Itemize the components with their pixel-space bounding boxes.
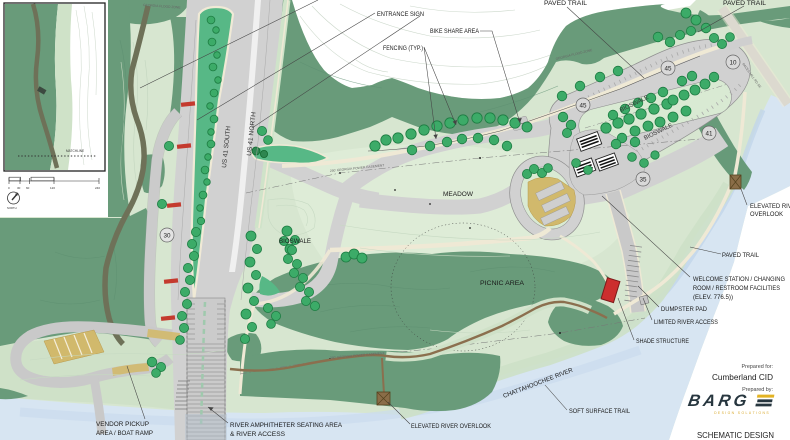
svg-text:Cumberland CID: Cumberland CID	[712, 373, 773, 382]
svg-text:NORTH: NORTH	[7, 206, 17, 210]
svg-text:45: 45	[579, 102, 587, 109]
svg-text:PICNIC AREA: PICNIC AREA	[480, 280, 525, 287]
svg-text:SHADE STRUCTURE: SHADE STRUCTURE	[636, 338, 689, 345]
svg-text:ENTRANCE SIGN: ENTRANCE SIGN	[377, 11, 424, 18]
svg-text:10: 10	[729, 59, 737, 66]
svg-text:PAVED TRAIL: PAVED TRAIL	[723, 0, 767, 7]
svg-text:ELEVATED RIVER: ELEVATED RIVER	[750, 203, 790, 210]
svg-text:DESIGN SOLUTIONS: DESIGN SOLUTIONS	[714, 411, 770, 415]
svg-text:ELEVATED RIVER OVERLOOK: ELEVATED RIVER OVERLOOK	[411, 423, 492, 430]
svg-text:SCHEMATIC DESIGN: SCHEMATIC DESIGN	[697, 431, 774, 440]
svg-text:MATCHLINE: MATCHLINE	[66, 149, 84, 153]
svg-text:FENCING (TYP.): FENCING (TYP.)	[383, 45, 423, 52]
svg-text:ROOM / RESTROOM FACILITIES: ROOM / RESTROOM FACILITIES	[693, 285, 780, 292]
svg-text:SOFT SURFACE TRAIL: SOFT SURFACE TRAIL	[569, 408, 631, 415]
svg-text:AREA / BOAT RAMP: AREA / BOAT RAMP	[96, 430, 153, 437]
svg-text:45: 45	[664, 65, 672, 72]
svg-text:35: 35	[639, 176, 647, 183]
svg-text:30: 30	[163, 232, 171, 239]
svg-text:30: 30	[17, 186, 21, 190]
svg-text:WELCOME STATION / CHANGING: WELCOME STATION / CHANGING	[693, 276, 785, 283]
svg-text:BIOSWALE: BIOSWALE	[279, 238, 311, 245]
svg-text:60: 60	[26, 186, 30, 190]
svg-text:MEADOW: MEADOW	[443, 191, 473, 198]
svg-text:LIMITED RIVER ACCESS: LIMITED RIVER ACCESS	[654, 319, 718, 326]
svg-text:120: 120	[50, 186, 55, 190]
svg-text:OVERLOOK: OVERLOOK	[750, 211, 784, 218]
svg-text:BARG: BARG	[687, 391, 752, 410]
svg-text:PAVED TRAIL: PAVED TRAIL	[544, 0, 588, 7]
svg-text:Prepared for:: Prepared for:	[742, 364, 773, 370]
svg-text:& RIVER ACCESS: & RIVER ACCESS	[230, 431, 285, 438]
svg-text:VENDOR PICKUP: VENDOR PICKUP	[96, 421, 149, 428]
svg-text:DUMPSTER PAD: DUMPSTER PAD	[661, 306, 708, 313]
svg-text:240: 240	[95, 186, 100, 190]
svg-text:(ELEV. 776.5)): (ELEV. 776.5))	[693, 294, 733, 301]
svg-text:PAVED TRAIL: PAVED TRAIL	[722, 252, 760, 259]
svg-text:RIVER AMPHITHETER SEATING AREA: RIVER AMPHITHETER SEATING AREA	[230, 422, 343, 429]
svg-text:41: 41	[705, 130, 713, 137]
svg-text:BIKE SHARE AREA: BIKE SHARE AREA	[430, 28, 480, 35]
